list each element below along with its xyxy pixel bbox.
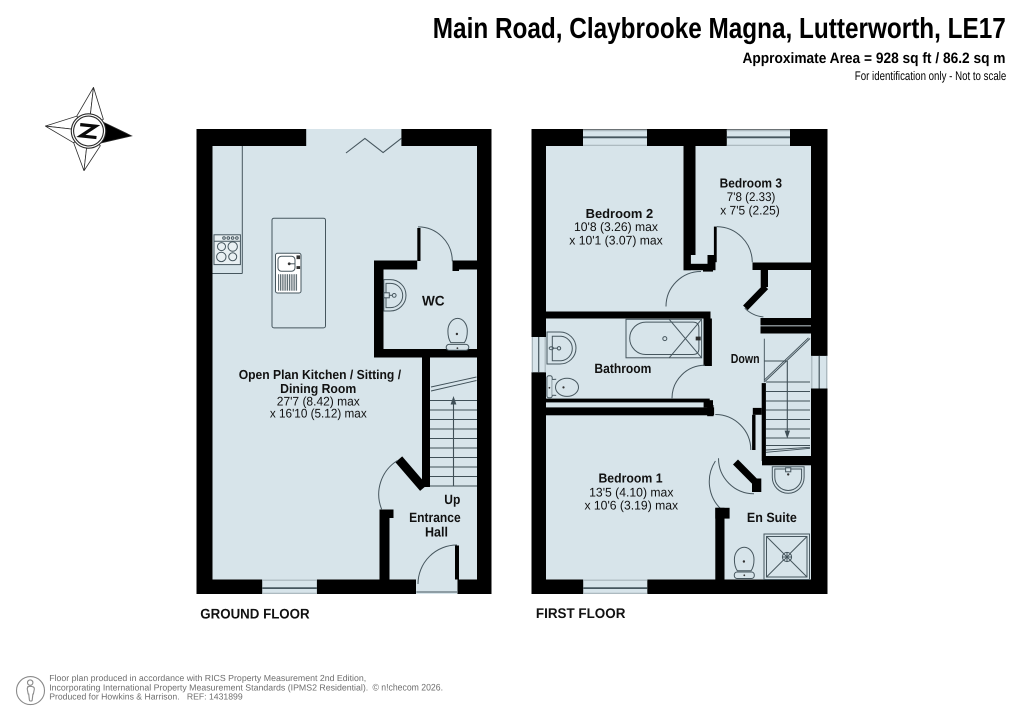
svg-text:13'5 (4.10) max: 13'5 (4.10) max (589, 485, 674, 499)
svg-text:Up: Up (444, 492, 460, 507)
svg-text:Bedroom 1: Bedroom 1 (598, 470, 662, 485)
svg-text:Bedroom 2: Bedroom 2 (586, 206, 654, 221)
svg-text:Hall: Hall (425, 524, 448, 539)
svg-text:7'8 (2.33): 7'8 (2.33) (727, 190, 776, 204)
svg-text:10'8 (3.26) max: 10'8 (3.26) max (574, 220, 659, 234)
svg-text:En Suite: En Suite (747, 510, 797, 525)
svg-text:GROUND FLOOR: GROUND FLOOR (200, 606, 309, 622)
svg-text:WC: WC (422, 293, 445, 309)
svg-text:Entrance: Entrance (409, 510, 461, 525)
svg-text:Produced for Howkins & Harriso: Produced for Howkins & Harrison. REF: 14… (49, 692, 243, 702)
svg-text:x 7'5 (2.25): x 7'5 (2.25) (720, 203, 780, 217)
svg-text:x 16'10 (5.12) max: x 16'10 (5.12) max (270, 406, 367, 420)
svg-text:© n!checom 2026.: © n!checom 2026. (373, 682, 444, 693)
svg-text:x 10'6 (3.19) max: x 10'6 (3.19) max (584, 498, 678, 512)
svg-text:Bedroom 3: Bedroom 3 (720, 176, 782, 191)
svg-text:FIRST FLOOR: FIRST FLOOR (536, 605, 626, 621)
svg-text:Open Plan Kitchen / Sitting /: Open Plan Kitchen / Sitting / (239, 367, 402, 382)
svg-text:Approximate Area = 928 sq ft /: Approximate Area = 928 sq ft / 86.2 sq m (743, 50, 1006, 67)
svg-text:Bathroom: Bathroom (594, 361, 651, 376)
svg-text:Main Road, Claybrooke Magna, L: Main Road, Claybrooke Magna, Lutterworth… (433, 13, 1006, 45)
svg-text:x 10'1 (3.07) max: x 10'1 (3.07) max (569, 233, 663, 247)
svg-text:Down: Down (731, 351, 760, 366)
svg-text:For identification only - Not: For identification only - Not to scale (855, 69, 1007, 83)
